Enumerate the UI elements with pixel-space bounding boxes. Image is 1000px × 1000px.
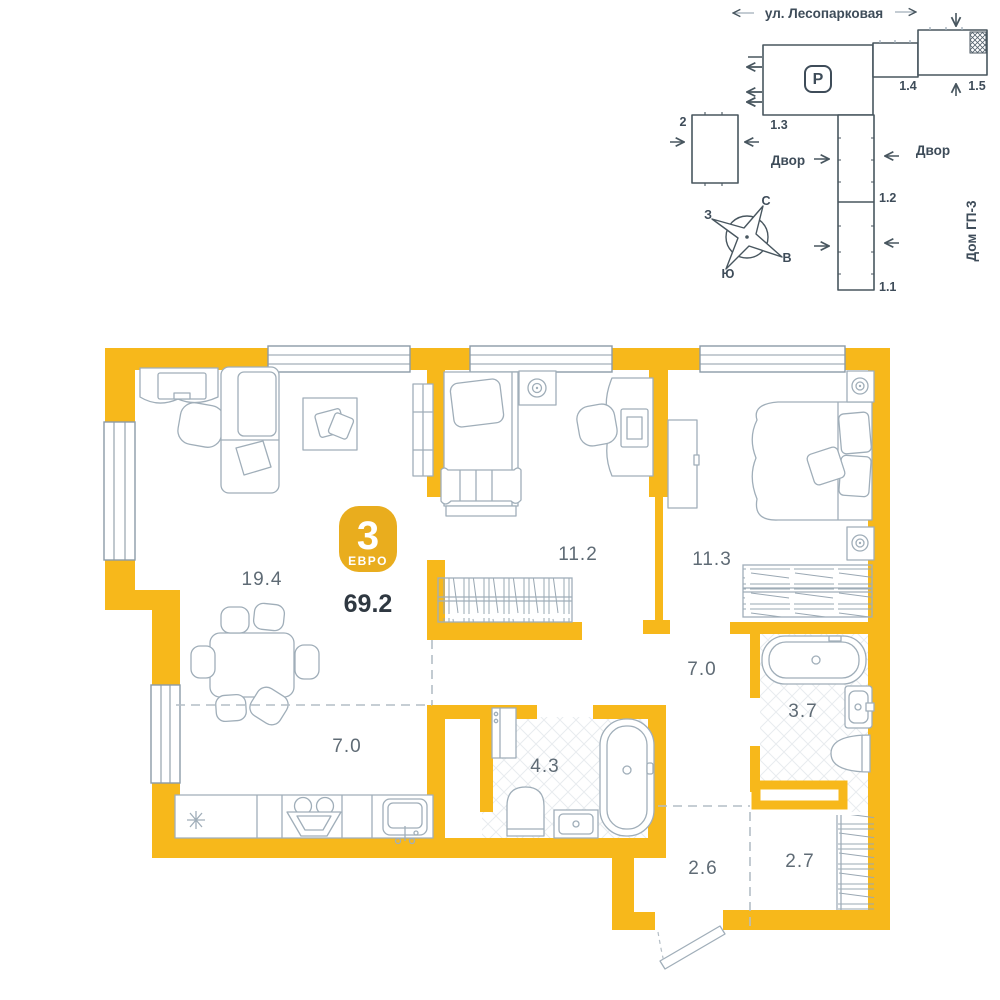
chair [295,645,319,679]
plan-svg: ул. Лесопарковая P 2 1.3 1.4 [0,0,1000,1000]
living-room-furniture [140,367,433,493]
building-2-label: 2 [680,115,687,129]
compass-west: З [704,208,712,222]
floorplan-page: ул. Лесопарковая P 2 1.3 1.4 [0,0,1000,1000]
wardrobe-closet [836,815,874,910]
room-area-bathroom-2: 4.3 [530,756,559,777]
total-area-label: 69.2 [344,590,393,618]
parking-letter: P [813,71,824,88]
badge-format-label: ЕВРО [348,554,388,568]
window-bedroom-1 [470,346,612,372]
monitor [621,409,648,447]
building-1-1-label: 1.1 [879,280,896,294]
building-1-2-label: 1.2 [879,191,896,205]
compass-east: В [782,251,791,265]
site-plan: ул. Лесопарковая P 2 1.3 1.4 [670,6,987,294]
kitchen-furniture [175,603,433,844]
window-kitchen [151,685,180,783]
building-1-4-label: 1.4 [899,79,916,93]
bedroom-1-furniture [438,371,653,622]
courtyard-left-label: Двор [771,153,805,168]
dining-table [210,633,294,697]
wardrobe [438,578,572,622]
entry-door [660,926,725,969]
bedroom-2-furniture [668,371,874,617]
compass-north: С [761,194,770,208]
pillow [450,378,505,428]
room-area-living-room: 19.4 [242,569,283,590]
room-area-bedroom-1: 11.2 [558,544,598,565]
door-swing-arc [658,932,664,962]
room-area-hallway: 7.0 [687,659,716,680]
floor-plan: 19.4 11.2 11.3 7.0 3.7 7.0 4.3 2.6 2.7 3… [104,346,890,969]
tv-unit [668,420,697,508]
building-1-3-label: 1.3 [770,118,787,132]
apartment-type-badge: 3 ЕВРО [339,506,397,572]
closet-rack [836,815,874,910]
street-label: ул. Лесопарковая [765,6,883,21]
window-bedroom-2 [700,346,845,372]
chair [215,694,247,722]
window-living [268,346,410,372]
compass-icon: С З В Ю [704,194,791,281]
badge-rooms-count: 3 [357,514,379,558]
desk-chair [176,400,227,449]
room-area-bathroom: 3.7 [788,701,817,722]
shaft-niche [756,785,843,805]
bathtub [762,636,866,684]
chair [191,646,215,678]
neighbor-house-label: Дом ГП-3 [964,200,979,261]
building-2 [692,115,738,183]
desk-chair [575,402,619,448]
room-area-bedroom-2: 11.3 [692,549,732,570]
window-living-side [104,422,135,560]
building-1-4 [873,43,918,77]
chair [221,607,249,633]
courtyard-right-label: Двор [916,143,950,158]
room-area-wardrobe: 2.7 [785,851,814,872]
room-area-kitchen: 7.0 [332,736,361,757]
bathtub [600,719,654,836]
pillow [838,412,871,454]
wardrobe [743,565,872,617]
compass-south: Ю [722,267,735,281]
current-location-marker [970,32,986,53]
chair [253,603,286,632]
building-1-5-label: 1.5 [968,79,985,93]
room-area-entry-hall: 2.6 [688,858,717,879]
